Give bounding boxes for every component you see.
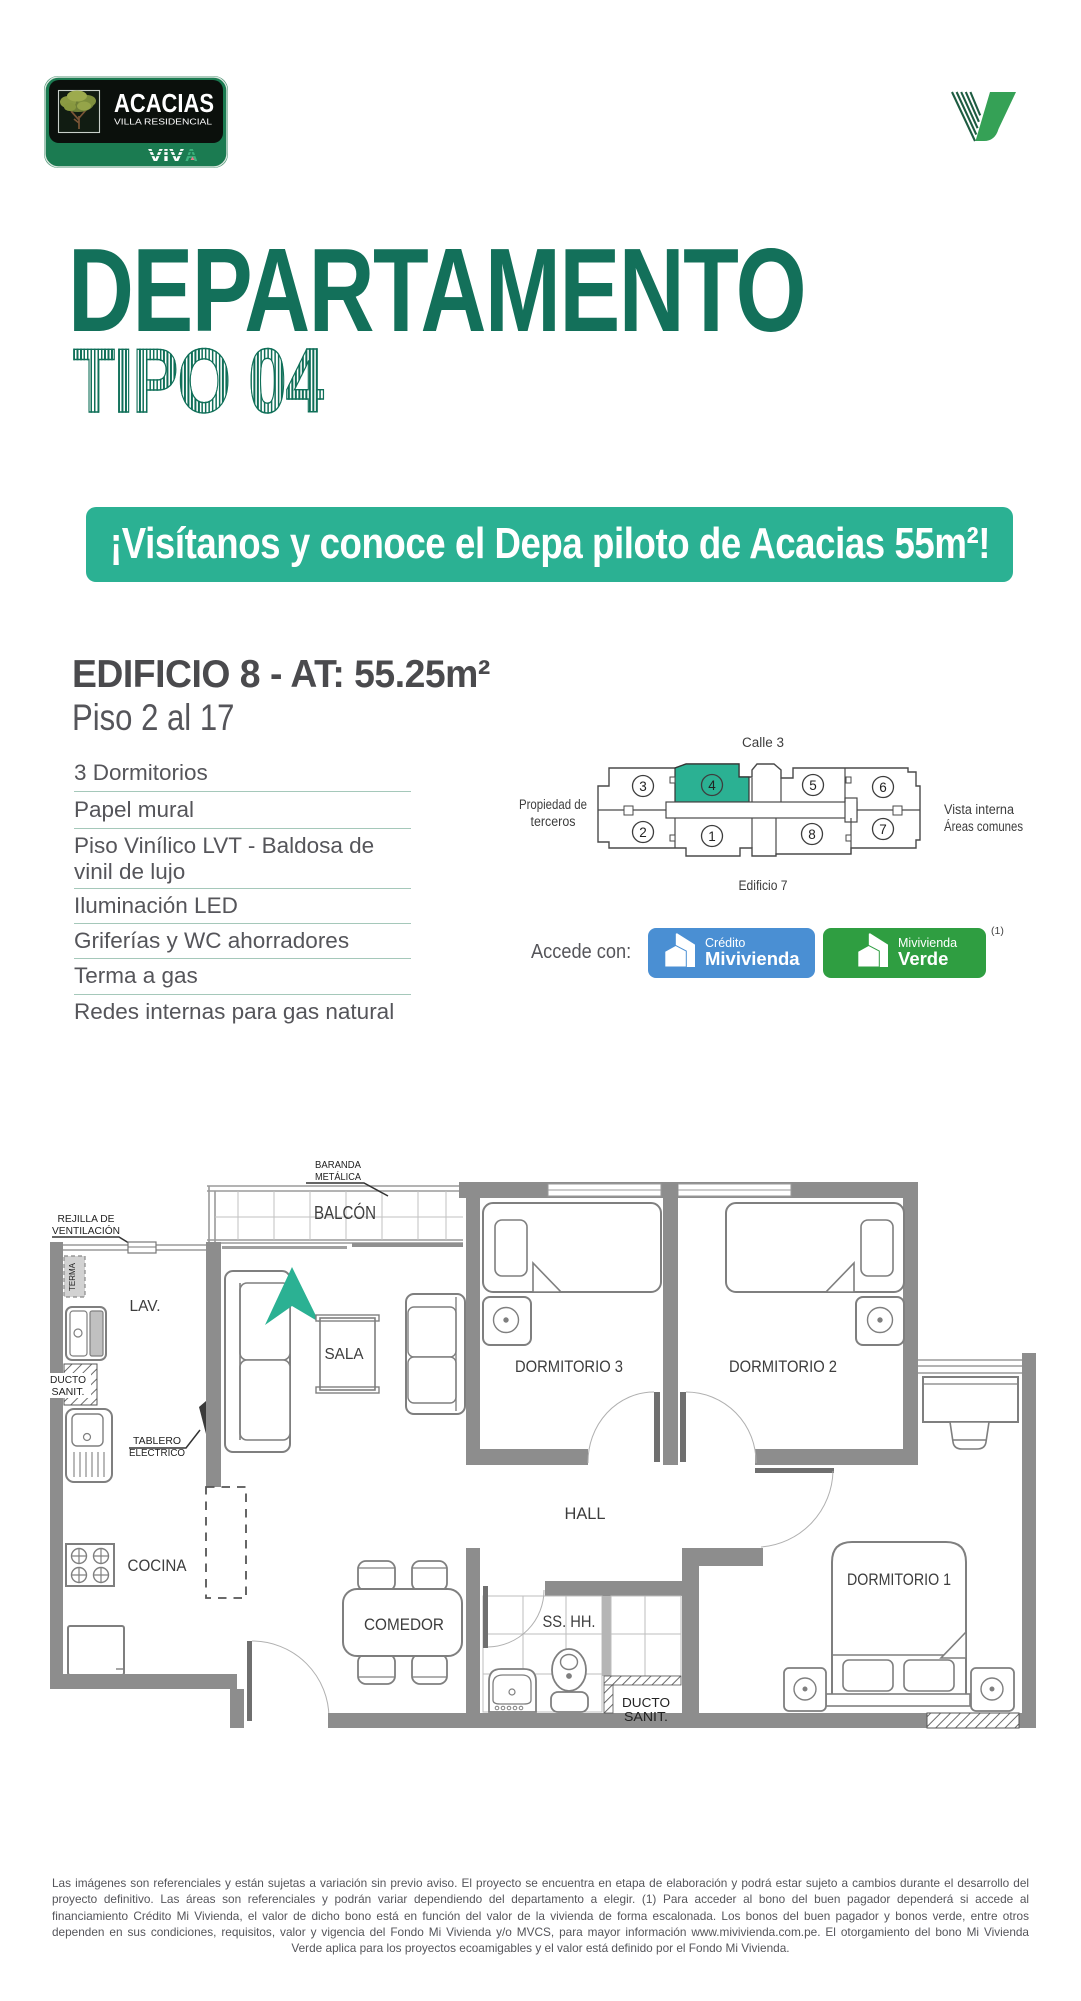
svg-text:Calle 3: Calle 3: [742, 735, 784, 750]
svg-text:BARANDA: BARANDA: [315, 1159, 361, 1171]
svg-text:5: 5: [809, 778, 817, 793]
svg-text:METÁLICA: METÁLICA: [315, 1170, 361, 1183]
svg-text:SS. HH.: SS. HH.: [543, 1613, 596, 1631]
svg-text:Áreas comunes: Áreas comunes: [944, 819, 1023, 834]
svg-text:DORMITORIO 3: DORMITORIO 3: [515, 1358, 623, 1376]
svg-text:7: 7: [879, 822, 887, 837]
svg-text:DORMITORIO 2: DORMITORIO 2: [729, 1358, 837, 1376]
svg-text:2: 2: [639, 825, 647, 840]
svg-text:SANIT.: SANIT.: [624, 1709, 668, 1724]
svg-text:DUCTO: DUCTO: [50, 1375, 86, 1386]
svg-text:COMEDOR: COMEDOR: [364, 1616, 444, 1634]
svg-text:VENTILACIÓN: VENTILACIÓN: [52, 1224, 120, 1237]
svg-text:TERMA: TERMA: [68, 1262, 77, 1291]
svg-text:HALL: HALL: [565, 1505, 606, 1523]
svg-text:BALCÓN: BALCÓN: [314, 1202, 376, 1223]
svg-text:8: 8: [808, 827, 816, 842]
svg-text:Edificio 7: Edificio 7: [739, 878, 788, 893]
svg-text:COCINA: COCINA: [128, 1557, 187, 1575]
svg-text:VILLA RESIDENCIAL: VILLA RESIDENCIAL: [114, 118, 213, 127]
svg-text:terceros: terceros: [531, 814, 576, 829]
svg-text:Mivivienda: Mivivienda: [705, 948, 800, 969]
svg-text:DORMITORIO 1: DORMITORIO 1: [847, 1571, 951, 1589]
svg-text:SANIT.: SANIT.: [52, 1387, 85, 1398]
svg-text:DUCTO: DUCTO: [622, 1695, 670, 1710]
svg-text:Propiedad de: Propiedad de: [519, 797, 587, 812]
svg-text:ACACIAS: ACACIAS: [114, 88, 214, 118]
svg-text:ELECTRICO: ELECTRICO: [129, 1447, 185, 1459]
svg-text:1: 1: [708, 829, 716, 844]
svg-text:3: 3: [639, 779, 647, 794]
svg-text:SALA: SALA: [325, 1346, 365, 1363]
svg-text:REJILLA DE: REJILLA DE: [58, 1213, 115, 1225]
svg-text:6: 6: [879, 780, 887, 795]
svg-text:LAV.: LAV.: [130, 1298, 161, 1315]
svg-text:4: 4: [708, 778, 716, 793]
svg-text:Verde: Verde: [898, 948, 948, 969]
svg-text:TABLERO: TABLERO: [133, 1435, 181, 1447]
svg-text:Vista interna: Vista interna: [944, 802, 1014, 817]
